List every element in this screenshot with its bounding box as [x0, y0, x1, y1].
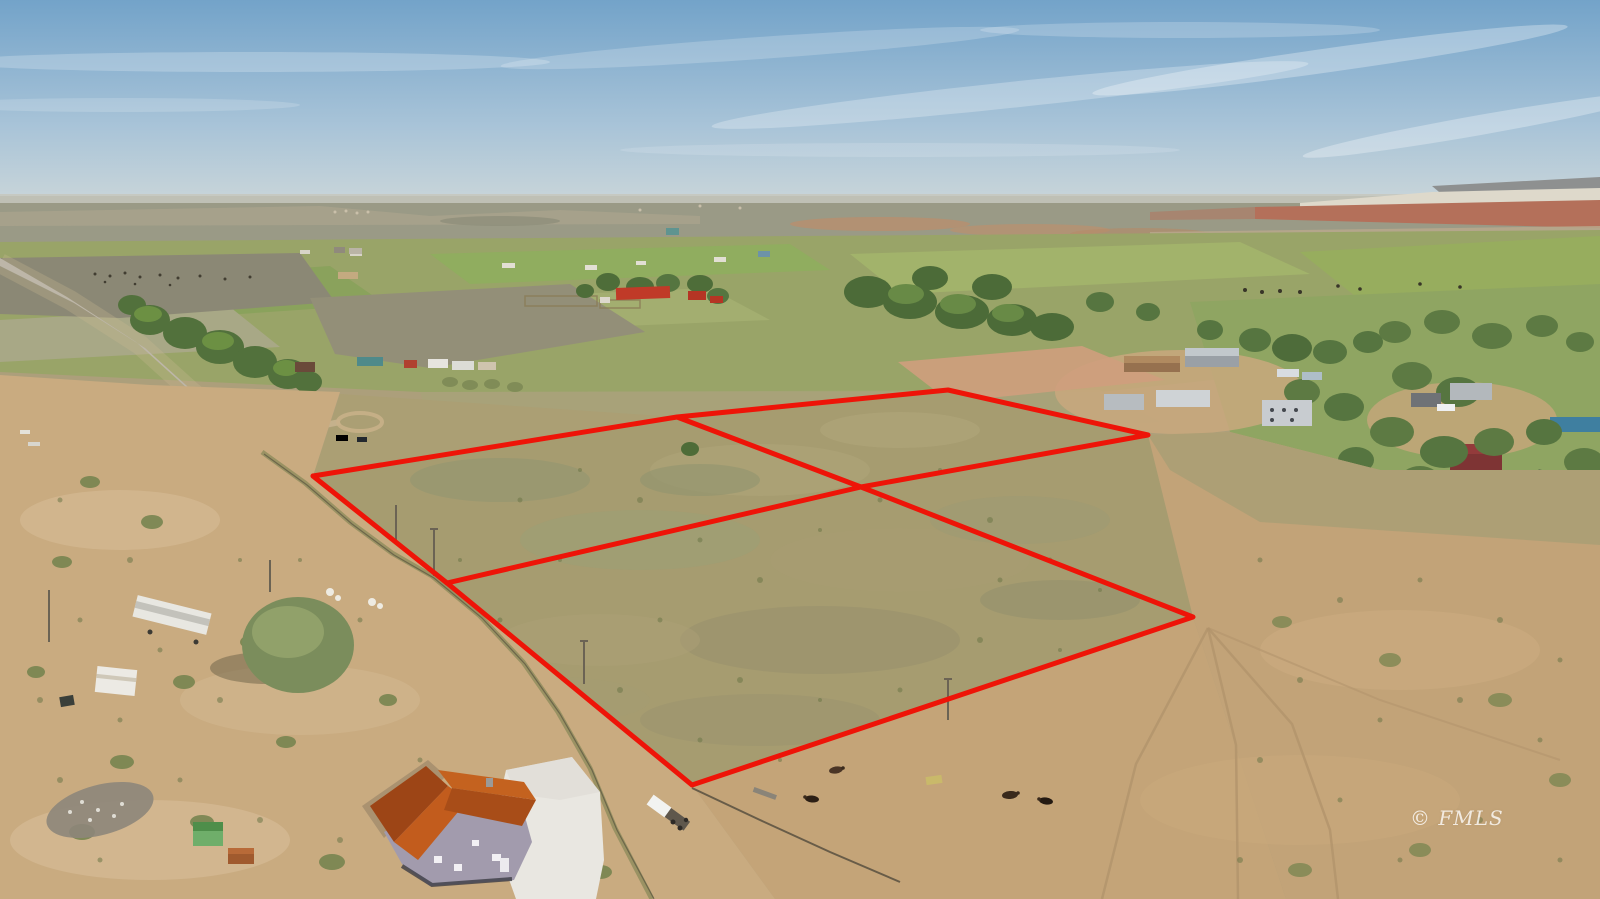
- right-tree: [1474, 428, 1514, 456]
- pasture-pale: [1140, 755, 1460, 845]
- left-farm-trailer: [452, 361, 474, 370]
- red-barn: [710, 296, 723, 303]
- distant-teal-building: [666, 228, 679, 235]
- gray-house: [1450, 383, 1492, 400]
- distant-white-building: [585, 265, 597, 270]
- sage-bush: [1272, 616, 1292, 628]
- red-barn: [616, 286, 670, 300]
- sage-bush: [141, 515, 163, 529]
- center-tree-cluster: [1030, 313, 1074, 341]
- power-pole: [48, 590, 50, 642]
- fmls-watermark: © FMLS: [1410, 806, 1504, 830]
- gray-barn-roof: [1185, 348, 1239, 356]
- power-pole: [395, 505, 397, 541]
- house-door: [500, 858, 509, 872]
- parcel-mottle: [820, 412, 980, 448]
- distant-white-building: [714, 257, 726, 262]
- tree-highlight: [940, 294, 976, 314]
- tan-house-roof-lit: [1124, 356, 1180, 363]
- sage-bush: [1379, 653, 1401, 667]
- parcel-mottle: [680, 606, 960, 674]
- sage-bush: [1488, 693, 1512, 707]
- sage-bush: [379, 694, 397, 706]
- right-tree: [1324, 393, 1364, 421]
- sage-bush: [110, 755, 134, 769]
- farm-tree: [687, 275, 713, 293]
- aerial-photo: [0, 0, 1600, 899]
- house-window: [472, 840, 479, 846]
- far-gray-patch: [440, 216, 560, 226]
- parcel-mottle: [410, 458, 590, 502]
- cottonwood-tree: [294, 371, 322, 393]
- pole-crossbar: [580, 640, 588, 642]
- house-window: [434, 856, 442, 863]
- screenshot-root: © FMLS: [0, 0, 1600, 899]
- gray-shed: [1104, 394, 1144, 410]
- sage-bush: [80, 476, 100, 488]
- parcel-mottle: [640, 464, 760, 496]
- power-pole: [583, 640, 585, 684]
- sage-bush: [52, 556, 72, 568]
- right-tree: [1472, 323, 1512, 349]
- sage-bush: [484, 379, 500, 389]
- cloud-streak: [620, 143, 1180, 157]
- parked-vehicle: [20, 430, 30, 434]
- far-red-dirt: [790, 217, 970, 231]
- tree-highlight: [134, 306, 162, 322]
- white-house: [1156, 390, 1210, 407]
- sage-bush: [27, 666, 45, 678]
- red-barn: [688, 291, 706, 300]
- right-tree: [1526, 419, 1562, 445]
- distant-white-building: [502, 263, 515, 268]
- scattered-tree: [1136, 303, 1160, 321]
- farm-tree: [576, 284, 594, 298]
- right-tree: [1420, 436, 1468, 468]
- sage-bush: [442, 377, 458, 387]
- scattered-tree: [1272, 334, 1312, 362]
- sage-bush: [1409, 843, 1431, 857]
- white-shed: [600, 297, 610, 303]
- center-tree-cluster: [972, 274, 1012, 300]
- sage-bush: [507, 382, 523, 392]
- left-farm-truck: [404, 360, 417, 368]
- foreground-pale: [20, 490, 220, 550]
- tree-highlight: [202, 332, 234, 350]
- left-farm-cabin: [295, 362, 315, 372]
- parcel-inner-tree: [681, 442, 699, 456]
- left-farm-trailer: [478, 362, 496, 370]
- tree-highlight: [888, 284, 924, 304]
- right-tree: [1370, 417, 1414, 447]
- parked-vehicle: [28, 442, 40, 446]
- pole-crossbar: [430, 528, 438, 530]
- right-tree: [1392, 362, 1432, 390]
- sage-bush: [1549, 773, 1571, 787]
- green-shed-roof: [193, 822, 223, 831]
- mobile-home: [1302, 372, 1322, 380]
- parcel-mottle: [930, 496, 1110, 544]
- right-tree: [1379, 321, 1411, 343]
- right-tree: [1424, 310, 1460, 334]
- scattered-tree: [1197, 320, 1223, 340]
- sage-bush: [276, 736, 296, 748]
- left-farm-trailer: [357, 357, 383, 366]
- two-story-house: [1262, 400, 1312, 426]
- scattered-tree: [1086, 292, 1114, 312]
- mid-shed: [338, 272, 358, 279]
- scattered-tree: [1239, 328, 1271, 352]
- parked-car: [357, 437, 367, 442]
- scene-layers: [0, 0, 1600, 899]
- willow-tree-highlight: [252, 606, 324, 658]
- mid-farmstead: [334, 247, 345, 253]
- white-car: [1437, 404, 1455, 411]
- distant-white-building: [636, 261, 646, 265]
- cloud-streak: [980, 22, 1380, 38]
- sage-bush: [173, 675, 195, 689]
- house-window: [454, 864, 462, 871]
- left-farm-trailer: [428, 359, 448, 368]
- sage-bush: [319, 854, 345, 870]
- rust-container-top: [228, 848, 254, 854]
- tree-highlight: [992, 304, 1024, 322]
- power-pole: [269, 560, 271, 592]
- house-chimney: [486, 778, 493, 787]
- house-window: [492, 854, 501, 861]
- right-tree: [1566, 332, 1594, 352]
- mobile-home: [1277, 369, 1299, 377]
- distant-blue-building: [758, 251, 770, 257]
- sage-bush: [462, 380, 478, 390]
- dark-house: [1411, 393, 1441, 407]
- right-tree: [1526, 315, 1558, 337]
- parked-car: [336, 435, 348, 441]
- pole-crossbar: [944, 678, 952, 680]
- scattered-tree: [1313, 340, 1347, 364]
- power-pole: [433, 528, 435, 576]
- distant-white-building: [300, 250, 310, 254]
- scattered-tree: [1353, 331, 1383, 353]
- mid-farmstead: [349, 248, 362, 254]
- sage-bush: [1288, 863, 1312, 877]
